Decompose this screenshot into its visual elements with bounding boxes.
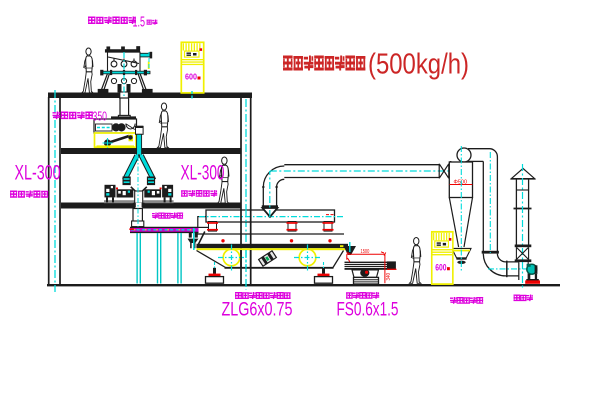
svg-text:600: 600 xyxy=(435,262,447,272)
svg-text:1500: 1500 xyxy=(361,249,370,255)
svg-text:600: 600 xyxy=(185,72,197,82)
svg-text:ZLG6x0.75: ZLG6x0.75 xyxy=(222,299,293,321)
svg-text:Φ500: Φ500 xyxy=(454,179,468,185)
svg-text:1.5: 1.5 xyxy=(133,14,146,31)
svg-text:(500kg/h): (500kg/h) xyxy=(368,49,469,81)
svg-text:350: 350 xyxy=(93,109,108,124)
svg-text:XL-300: XL-300 xyxy=(15,162,61,185)
svg-text:FS0.6x1.5: FS0.6x1.5 xyxy=(337,299,399,321)
svg-text:XL-300: XL-300 xyxy=(181,162,225,185)
svg-text:340: 340 xyxy=(386,273,392,281)
